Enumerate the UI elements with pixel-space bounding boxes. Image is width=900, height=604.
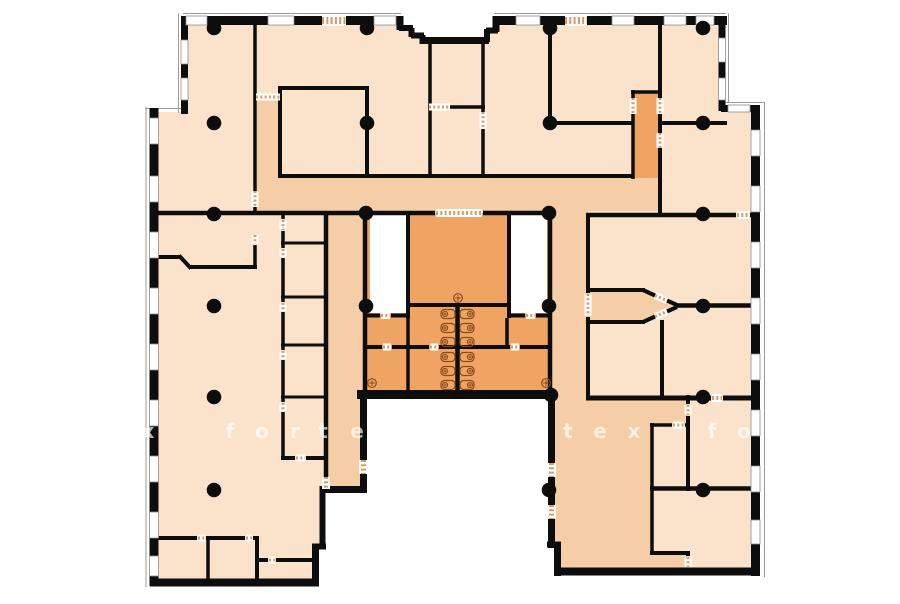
window xyxy=(719,38,726,62)
watermark-letter: x xyxy=(142,419,155,443)
column xyxy=(207,116,222,131)
column xyxy=(207,390,222,405)
window xyxy=(374,16,396,25)
column xyxy=(696,483,711,498)
watermark-letter: t xyxy=(563,419,573,443)
window xyxy=(150,118,159,144)
window xyxy=(751,186,760,212)
watermark-letter: o xyxy=(737,419,751,443)
window xyxy=(751,298,760,324)
column xyxy=(543,116,558,131)
window xyxy=(150,232,159,258)
column xyxy=(360,116,375,131)
window xyxy=(664,16,686,25)
column xyxy=(360,21,375,36)
window xyxy=(751,242,760,268)
column xyxy=(542,483,557,498)
window xyxy=(186,16,207,25)
window xyxy=(751,130,760,156)
window xyxy=(181,78,188,100)
corridor-main xyxy=(257,178,660,211)
column xyxy=(542,206,557,221)
window xyxy=(150,556,159,576)
window xyxy=(181,40,188,64)
corridor-entry xyxy=(257,97,281,178)
watermark-letter: t xyxy=(318,419,328,443)
watermark-letter: o xyxy=(255,419,269,443)
column xyxy=(359,206,374,221)
column xyxy=(542,299,557,314)
column xyxy=(207,207,222,222)
watermark-letter: x xyxy=(628,419,641,443)
window xyxy=(751,520,760,544)
window xyxy=(751,354,760,380)
column xyxy=(696,390,711,405)
floor-plan-drawing: xfortetexfo xyxy=(0,0,900,604)
watermark-letter: r xyxy=(290,419,300,443)
watermark-letter: f xyxy=(226,419,235,443)
window xyxy=(728,105,750,112)
column xyxy=(696,116,711,131)
elevator-shaft-left xyxy=(370,215,406,313)
corridor-stub xyxy=(633,92,660,178)
column xyxy=(543,21,558,36)
column xyxy=(359,299,374,314)
window xyxy=(150,512,159,538)
column xyxy=(696,207,711,222)
window xyxy=(751,410,760,436)
window xyxy=(751,466,760,492)
column xyxy=(544,388,559,403)
window xyxy=(516,16,540,25)
column xyxy=(207,21,222,36)
column xyxy=(207,299,222,314)
window xyxy=(150,288,159,314)
window xyxy=(150,344,159,370)
window xyxy=(268,16,294,25)
corridor-left-wing xyxy=(326,211,363,492)
column xyxy=(696,21,711,36)
column xyxy=(696,299,711,314)
elevator-shaft-right xyxy=(511,215,547,313)
window xyxy=(150,456,159,482)
floor-plan-canvas: xfortetexfo xyxy=(0,0,900,604)
watermark-letter: e xyxy=(350,419,364,443)
window xyxy=(719,78,726,100)
corridor-right-of-core xyxy=(552,211,588,398)
watermark-letter: f xyxy=(708,419,717,443)
watermark-letter: e xyxy=(593,419,607,443)
column xyxy=(207,483,222,498)
window xyxy=(612,16,634,25)
window xyxy=(150,176,159,202)
